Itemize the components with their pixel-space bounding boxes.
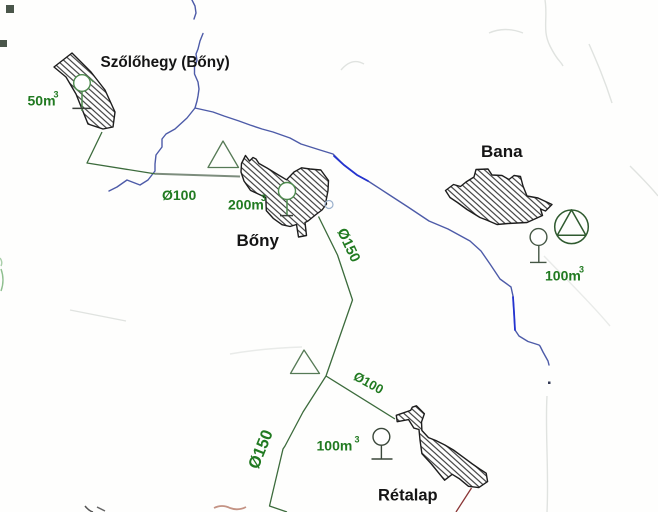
- svg-text:200m: 200m: [228, 197, 264, 213]
- svg-text:Bőny: Bőny: [237, 231, 280, 250]
- svg-text:Szőlőhegy (Bőny): Szőlőhegy (Bőny): [101, 54, 230, 71]
- svg-text:3: 3: [261, 193, 266, 203]
- svg-text:Rétalap: Rétalap: [378, 487, 438, 505]
- svg-text:Ø100: Ø100: [162, 187, 196, 203]
- svg-text:3: 3: [54, 90, 59, 100]
- svg-text:100m: 100m: [545, 268, 581, 284]
- svg-text:3: 3: [355, 435, 360, 445]
- svg-text:Bana: Bana: [481, 142, 523, 161]
- svg-text:3: 3: [579, 265, 584, 275]
- svg-text:100m: 100m: [317, 438, 353, 454]
- svg-text:50m: 50m: [28, 93, 56, 109]
